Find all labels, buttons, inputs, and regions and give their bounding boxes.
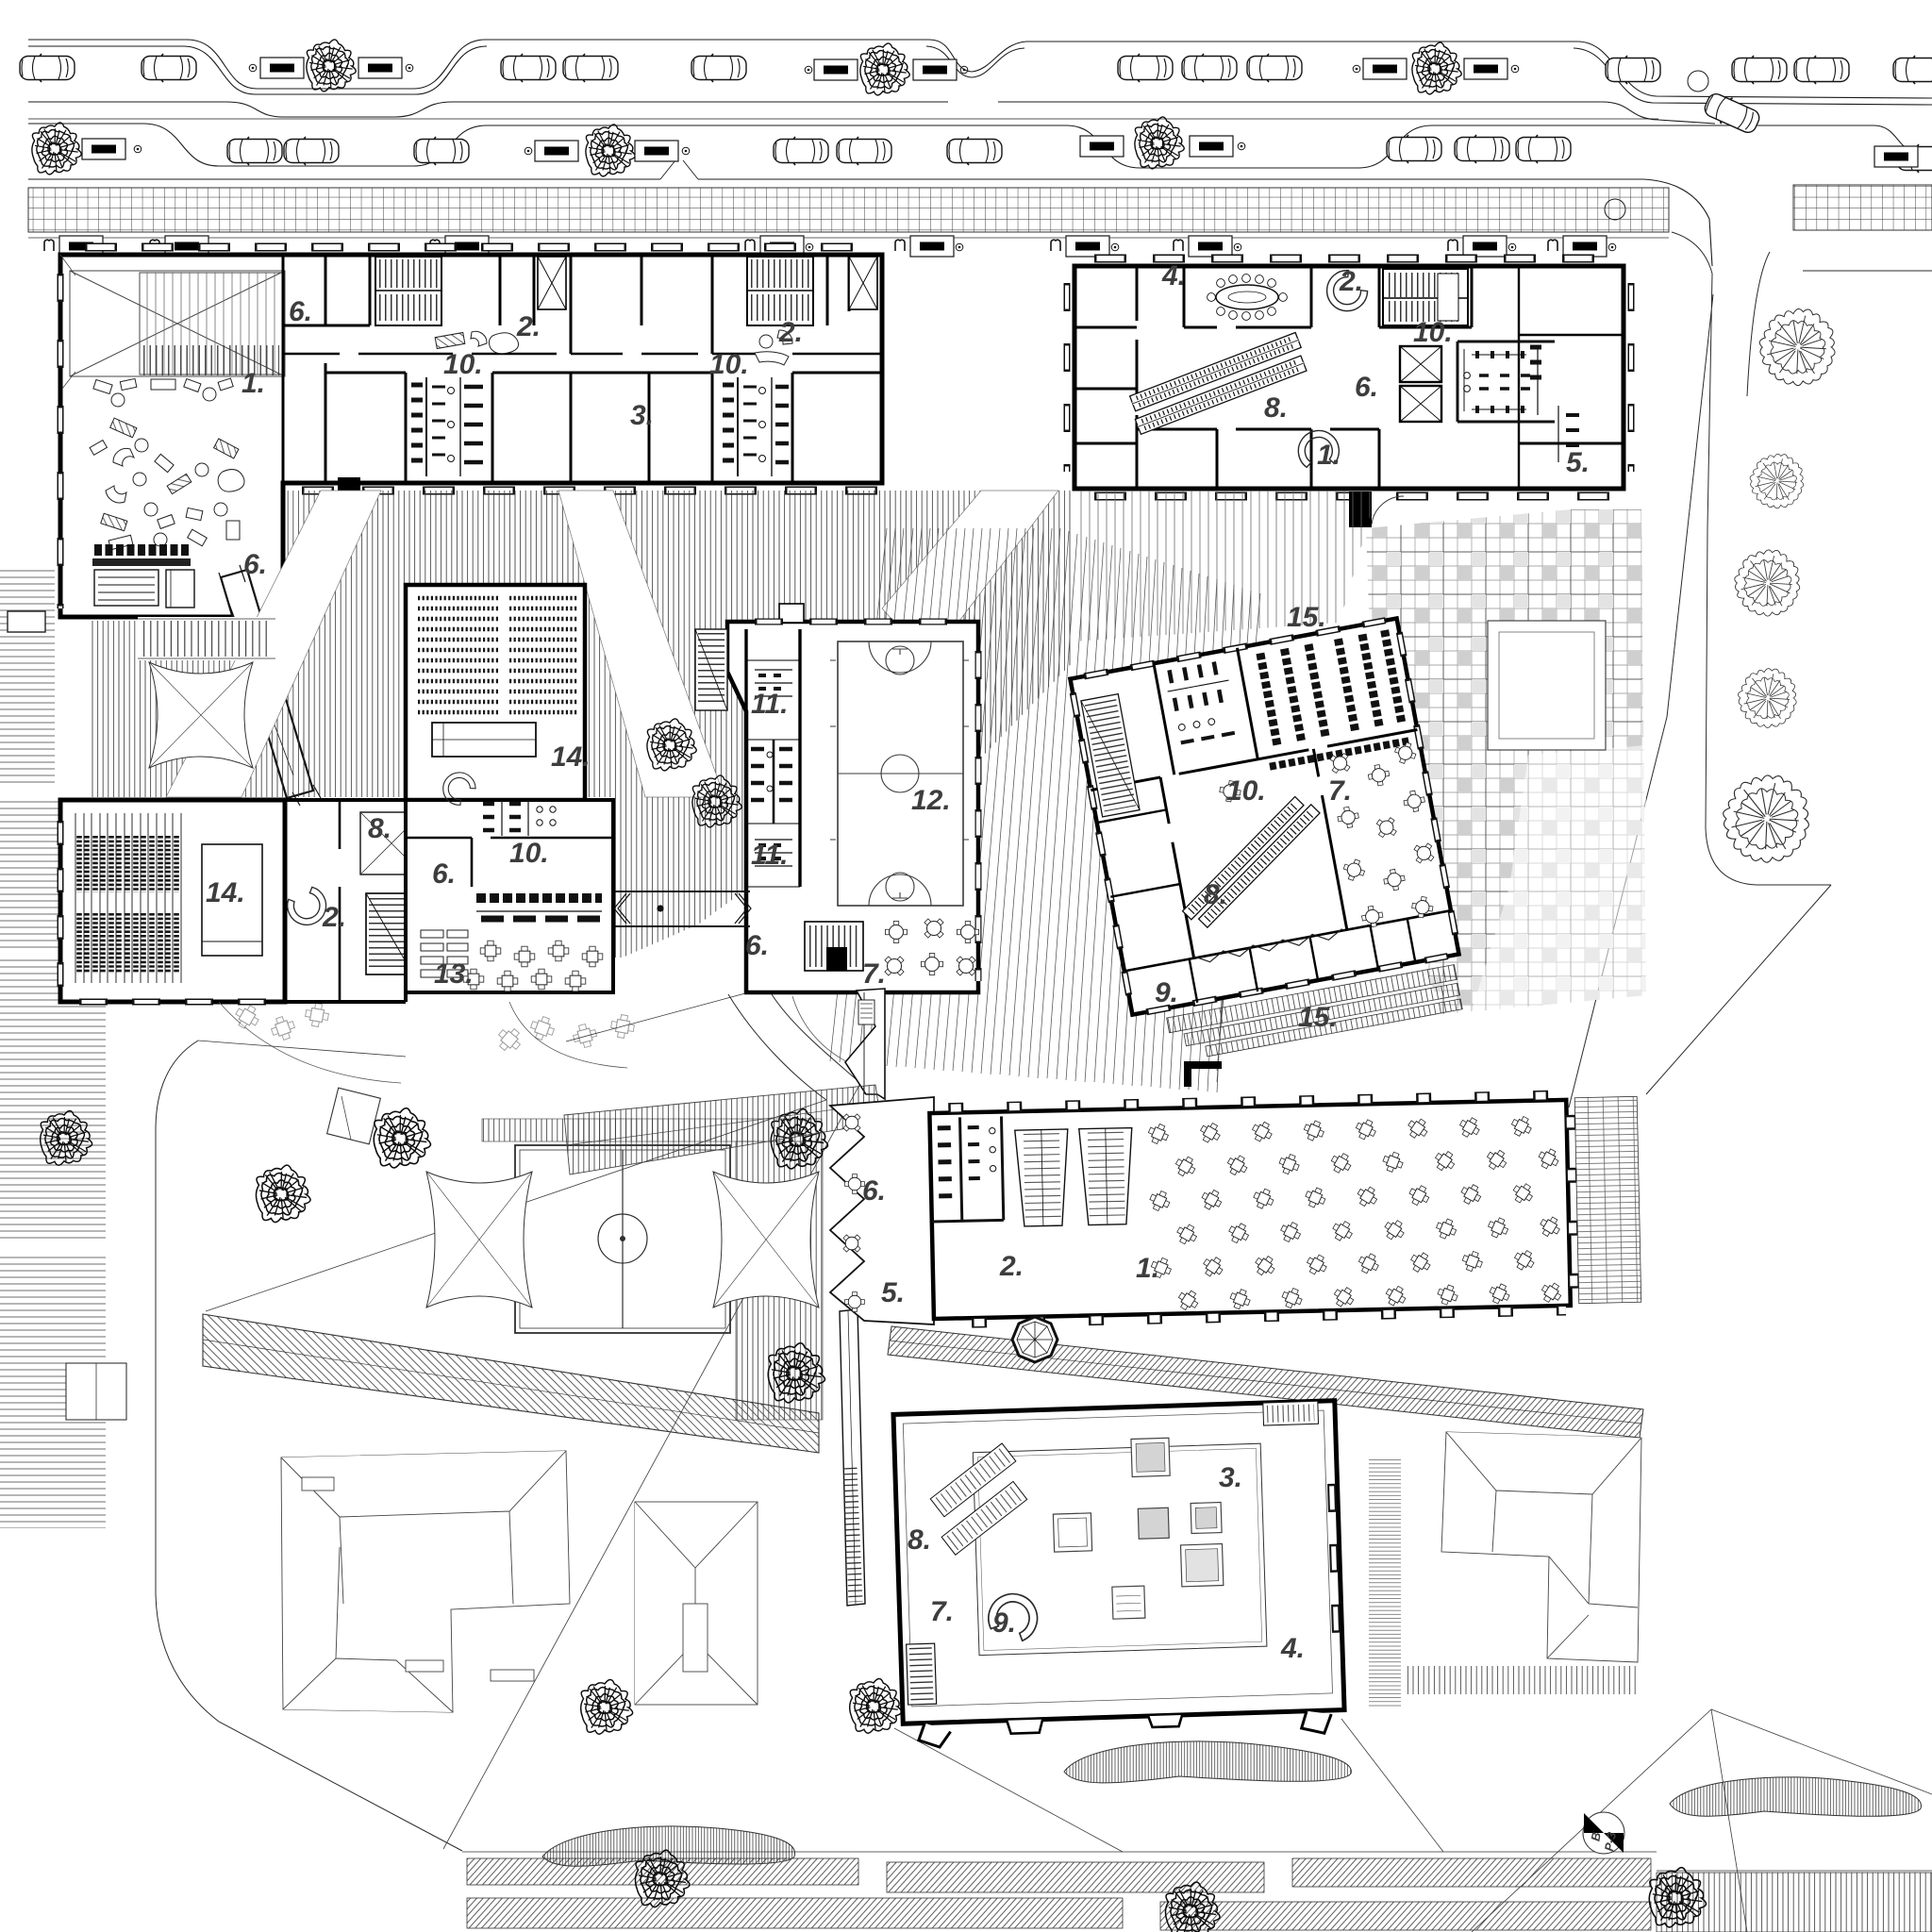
svg-text:12.: 12.: [911, 785, 951, 816]
svg-text:13.: 13.: [434, 958, 474, 990]
svg-text:14.: 14.: [551, 741, 591, 773]
svg-text:8.: 8.: [1264, 392, 1288, 424]
svg-text:7.: 7.: [862, 958, 886, 990]
svg-text:10.: 10.: [1413, 317, 1453, 348]
svg-text:6.: 6.: [432, 858, 456, 890]
svg-text:6.: 6.: [289, 296, 312, 327]
svg-text:15.: 15.: [1298, 1002, 1338, 1033]
svg-text:2.: 2.: [999, 1251, 1024, 1282]
svg-text:5.: 5.: [1566, 447, 1590, 478]
svg-text:10.: 10.: [509, 838, 549, 869]
svg-text:14.: 14.: [206, 877, 245, 908]
svg-text:9.: 9.: [992, 1607, 1016, 1639]
svg-text:1.: 1.: [1136, 1253, 1159, 1284]
svg-text:5.: 5.: [881, 1277, 905, 1308]
svg-text:9.: 9.: [1155, 977, 1178, 1008]
svg-text:6.: 6.: [243, 549, 267, 580]
svg-text:3.: 3.: [1219, 1462, 1242, 1493]
svg-text:11.: 11.: [751, 689, 788, 720]
svg-text:3.: 3.: [630, 400, 654, 431]
svg-text:6.: 6.: [1355, 372, 1378, 403]
svg-text:8.: 8.: [368, 813, 391, 844]
svg-text:6.: 6.: [862, 1175, 886, 1207]
svg-text:7.: 7.: [930, 1596, 954, 1627]
svg-text:2.: 2.: [322, 902, 346, 933]
svg-text:8.: 8.: [908, 1524, 931, 1556]
svg-text:6.: 6.: [745, 930, 769, 961]
svg-text:10.: 10.: [709, 349, 749, 380]
svg-text:4.: 4.: [1280, 1633, 1305, 1664]
svg-text:1.: 1.: [241, 368, 265, 399]
svg-text:8.: 8.: [1204, 879, 1227, 910]
svg-text:2.: 2.: [1339, 266, 1363, 297]
svg-text:11.: 11.: [751, 840, 788, 871]
svg-text:1.: 1.: [1317, 440, 1341, 471]
svg-text:4.: 4.: [1161, 260, 1186, 291]
svg-text:2.: 2.: [516, 311, 541, 342]
svg-text:2.: 2.: [778, 317, 803, 348]
svg-text:15.: 15.: [1287, 602, 1326, 633]
svg-text:7.: 7.: [1328, 775, 1352, 807]
svg-text:10.: 10.: [443, 349, 483, 380]
svg-text:10.: 10.: [1226, 775, 1266, 807]
